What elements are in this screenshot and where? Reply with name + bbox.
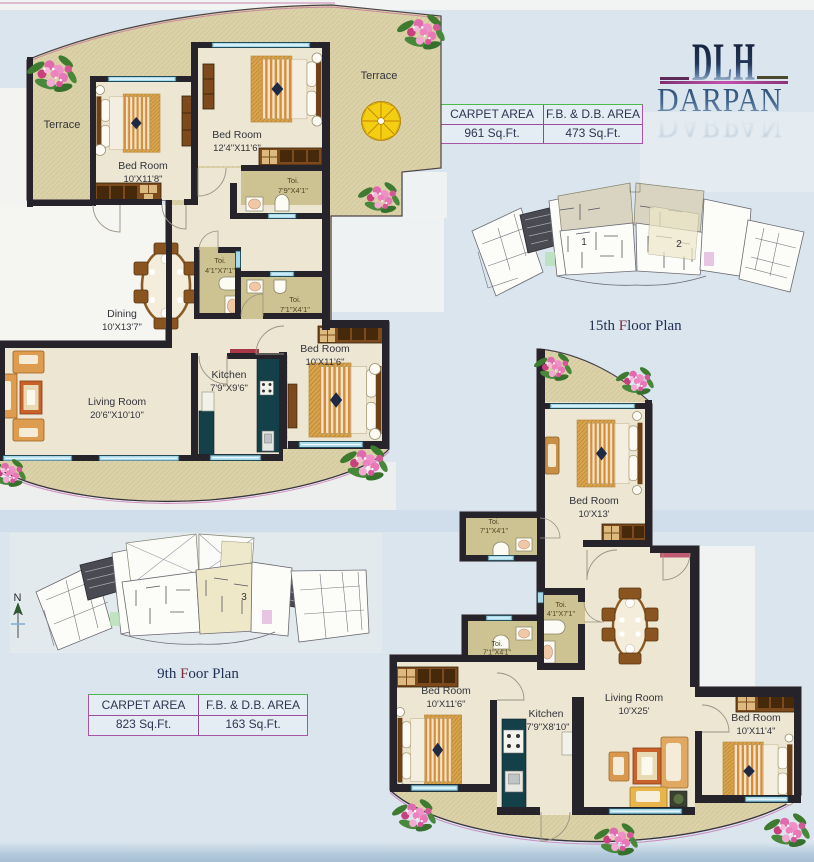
svg-text:3: 3 <box>241 592 247 603</box>
svg-text:10'X25': 10'X25' <box>618 706 649 717</box>
svg-text:Bed Room: Bed Room <box>569 495 619 507</box>
svg-text:Bed Room: Bed Room <box>421 685 471 697</box>
svg-text:7'9"X8'10": 7'9"X8'10" <box>526 722 569 733</box>
svg-text:Terrace: Terrace <box>361 70 398 82</box>
svg-text:7'9"X9'6": 7'9"X9'6" <box>210 383 248 394</box>
svg-text:Toi.: Toi. <box>214 256 226 265</box>
svg-text:1: 1 <box>581 237 587 248</box>
svg-text:10'X13'7": 10'X13'7" <box>102 322 142 333</box>
svg-text:Toi.: Toi. <box>289 295 301 304</box>
svg-text:Bed Room: Bed Room <box>212 129 262 141</box>
svg-text:2: 2 <box>676 239 682 250</box>
svg-text:4'1"X7'1": 4'1"X7'1" <box>205 266 235 275</box>
svg-text:Bed Room: Bed Room <box>118 160 168 172</box>
svg-text:Toi.: Toi. <box>287 176 299 185</box>
svg-text:Living Room: Living Room <box>88 396 147 408</box>
svg-text:Dining: Dining <box>107 308 137 320</box>
svg-text:Toi.: Toi. <box>489 519 500 526</box>
svg-text:Living Room: Living Room <box>605 692 664 704</box>
svg-text:Toi.: Toi. <box>556 602 567 609</box>
svg-text:Kitchen: Kitchen <box>528 708 563 720</box>
svg-text:10'X11'8": 10'X11'8" <box>123 174 162 185</box>
svg-text:7'9"X4'1": 7'9"X4'1" <box>278 186 308 195</box>
svg-text:Bed Room: Bed Room <box>731 712 781 724</box>
svg-text:Kitchen: Kitchen <box>211 369 246 381</box>
svg-text:7'1"X4'1": 7'1"X4'1" <box>280 305 310 314</box>
svg-text:7'1"X4'1": 7'1"X4'1" <box>483 650 511 657</box>
svg-text:10'X11'6": 10'X11'6" <box>426 699 465 710</box>
svg-text:10'X13': 10'X13' <box>578 509 609 520</box>
svg-text:10'X11'6": 10'X11'6" <box>305 357 344 368</box>
svg-text:7'1"X4'1": 7'1"X4'1" <box>480 528 508 535</box>
svg-text:4'1"X7'1": 4'1"X7'1" <box>547 611 575 618</box>
svg-text:Toi.: Toi. <box>492 641 503 648</box>
svg-text:10'X11'4": 10'X11'4" <box>736 726 775 737</box>
svg-text:N: N <box>14 592 22 604</box>
svg-text:12'4"X11'6": 12'4"X11'6" <box>213 143 261 154</box>
svg-text:Bed Room: Bed Room <box>300 343 350 355</box>
svg-text:20'6"X10'10": 20'6"X10'10" <box>90 410 144 421</box>
svg-text:Terrace: Terrace <box>44 119 81 131</box>
